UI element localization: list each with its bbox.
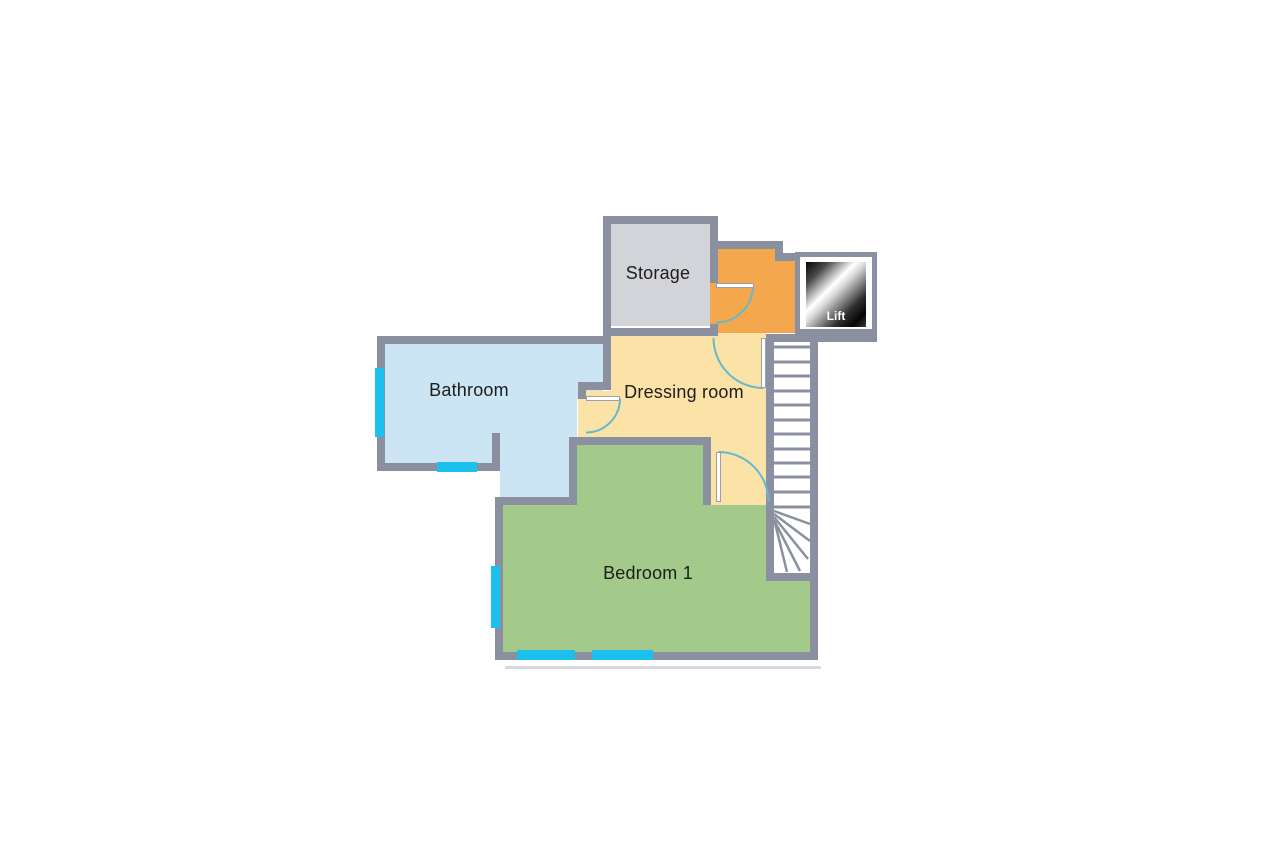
- landing-door-leaf: [761, 338, 766, 388]
- bedroom-door-arc: [719, 452, 769, 502]
- bedroom-door-leaf: [716, 452, 721, 502]
- storage-door-arc: [716, 286, 753, 323]
- room-label-bedroom: Bedroom 1: [548, 563, 748, 584]
- stair-winders: [774, 511, 810, 572]
- landing-door-arc: [714, 338, 764, 388]
- staircase-and-door-arcs: [0, 0, 1280, 853]
- floor-plan: Lift Storage Bathroom Dressing room Bedr…: [0, 0, 1280, 853]
- room-label-bathroom: Bathroom: [369, 380, 569, 401]
- room-label-dressing: Dressing room: [584, 382, 784, 403]
- bathroom-door-arc: [586, 399, 620, 433]
- stair-treads: [774, 347, 810, 507]
- room-label-storage: Storage: [558, 263, 758, 284]
